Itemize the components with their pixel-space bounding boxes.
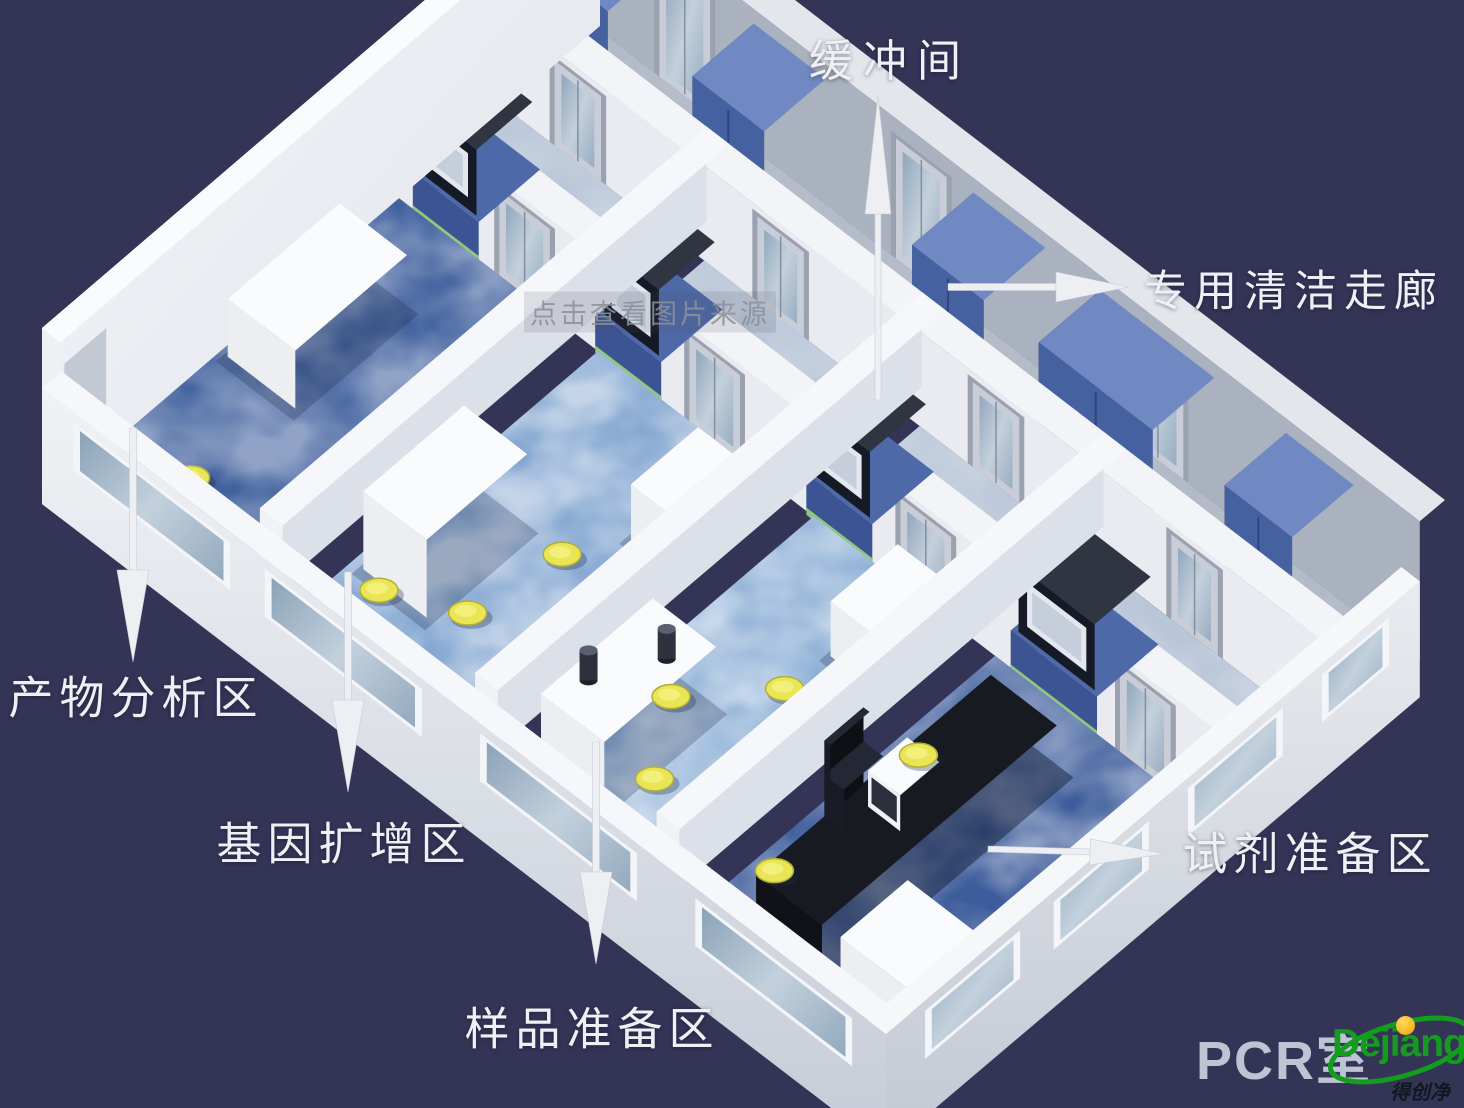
lab-building [42,0,1445,1108]
logo-subtext: 得创净化 [1390,1076,1464,1108]
logo-dot-icon [1396,1016,1415,1035]
stool-highlight [761,863,783,875]
label-gene-amplification-area: 基因扩增区 [216,807,471,872]
label-product-analysis-area: 产物分析区 [8,661,263,726]
machine-port-2 [658,624,676,634]
machine-port-1 [580,645,598,655]
pcr-lab-diagram: 缓冲间 专用清洁走廊 产物分析区 基因扩增区 样品准备区 试剂准备区 点击查看图… [0,0,1464,1108]
stool-highlight [905,747,927,759]
stool-highlight [455,605,477,617]
label-clean-corridor: 专用清洁走廊 [1144,257,1444,319]
label-buffer-room: 缓冲间 [809,25,971,89]
watermark-text: 点击查看图片来源 [524,292,776,333]
stool-highlight [366,582,388,594]
label-reagent-preparation-area: 试剂准备区 [1182,817,1437,882]
stool-highlight [658,689,680,701]
stool-highlight [772,681,794,693]
stool-highlight [549,546,571,558]
label-sample-preparation-area: 样品准备区 [464,992,719,1057]
dejiang-logo: Dejiang 得创净化 [1318,998,1464,1108]
chair-backrest-room4 [824,741,830,780]
pcr-lab-3d-illustration [0,0,1464,1108]
stool-highlight [642,771,664,783]
